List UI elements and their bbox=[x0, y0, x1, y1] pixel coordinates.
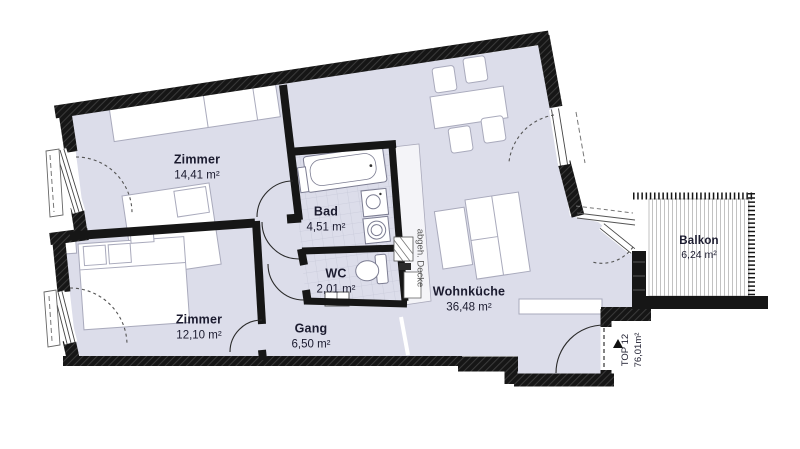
chair bbox=[432, 65, 457, 93]
chair bbox=[463, 55, 488, 83]
washing-machine bbox=[363, 216, 390, 243]
window-zimmer-2 bbox=[44, 290, 75, 347]
unit-name: TOP 12 bbox=[619, 333, 632, 368]
balcony-parapet bbox=[637, 296, 768, 309]
chair bbox=[481, 115, 506, 143]
pillow bbox=[174, 187, 209, 217]
ceiling-annotation: abgeh. Decke bbox=[415, 229, 426, 288]
entry-door-opening bbox=[604, 327, 606, 370]
balcony bbox=[633, 193, 768, 309]
unit-label: TOP 12 76,01m² bbox=[619, 333, 645, 368]
pillow bbox=[83, 245, 106, 265]
unit-area: 76,01m² bbox=[632, 333, 645, 368]
chair bbox=[448, 125, 473, 153]
pillow bbox=[108, 243, 131, 263]
balcony-decking bbox=[649, 199, 749, 296]
kitchen-counter bbox=[519, 299, 602, 314]
floorplan-page: Zimmer 14,41 m² Zimmer 12,10 m² Bad 4,51… bbox=[0, 0, 800, 449]
entry-marker-icon bbox=[613, 339, 623, 348]
washbasin bbox=[361, 188, 389, 216]
floorplan-canvas bbox=[0, 0, 800, 449]
